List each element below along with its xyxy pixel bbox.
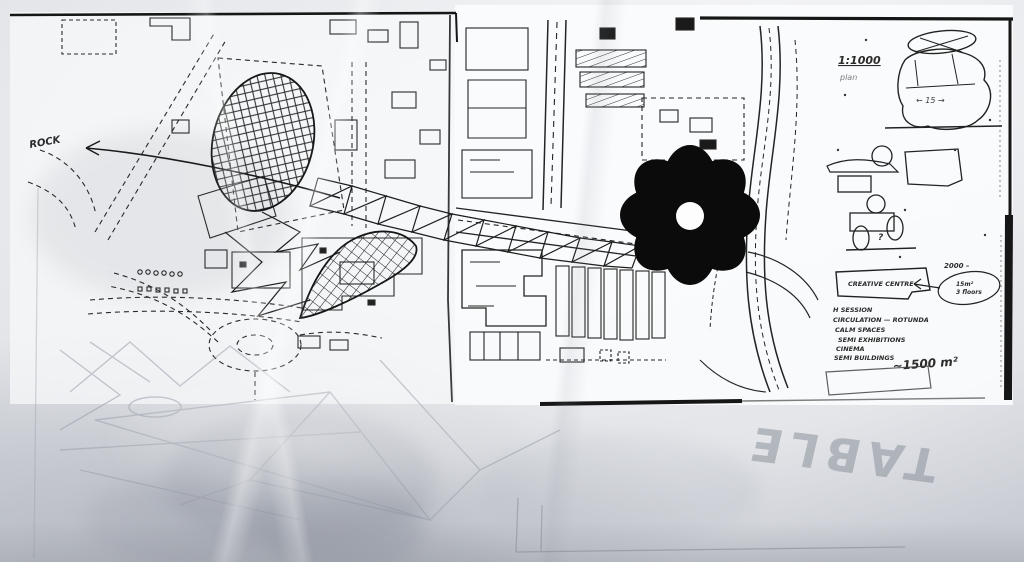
programme-line: CIRCULATION — ROTUNDA xyxy=(833,316,929,324)
programme-line: SEMI BUILDINGS xyxy=(834,354,895,362)
capacity-note: 2000 – xyxy=(944,262,970,270)
programme-line: CALM SPACES xyxy=(835,326,886,334)
shadow-smudges xyxy=(85,410,760,562)
bubble-line1: 15m² xyxy=(956,281,974,288)
flower-plaza-sketch xyxy=(620,145,760,285)
centre-box-label: CREATIVE CENTRE xyxy=(848,280,914,288)
programme-line: CINEMA xyxy=(836,345,865,353)
scale-sublabel: plan xyxy=(839,73,857,82)
rock-dimension: ← 15 → xyxy=(916,96,945,105)
programme-line: H SESSION xyxy=(833,306,873,314)
question-mark: ? xyxy=(878,233,883,243)
scale-label: 1:1000 xyxy=(838,54,881,67)
flower-centre xyxy=(676,202,704,230)
bubble-line2: 3 floors xyxy=(956,289,982,296)
photo-of-sketch: ROCK 1:1000 plan ← 15 → ? xyxy=(0,0,1024,562)
programme-line: SEMI EXHIBITIONS xyxy=(838,336,906,344)
